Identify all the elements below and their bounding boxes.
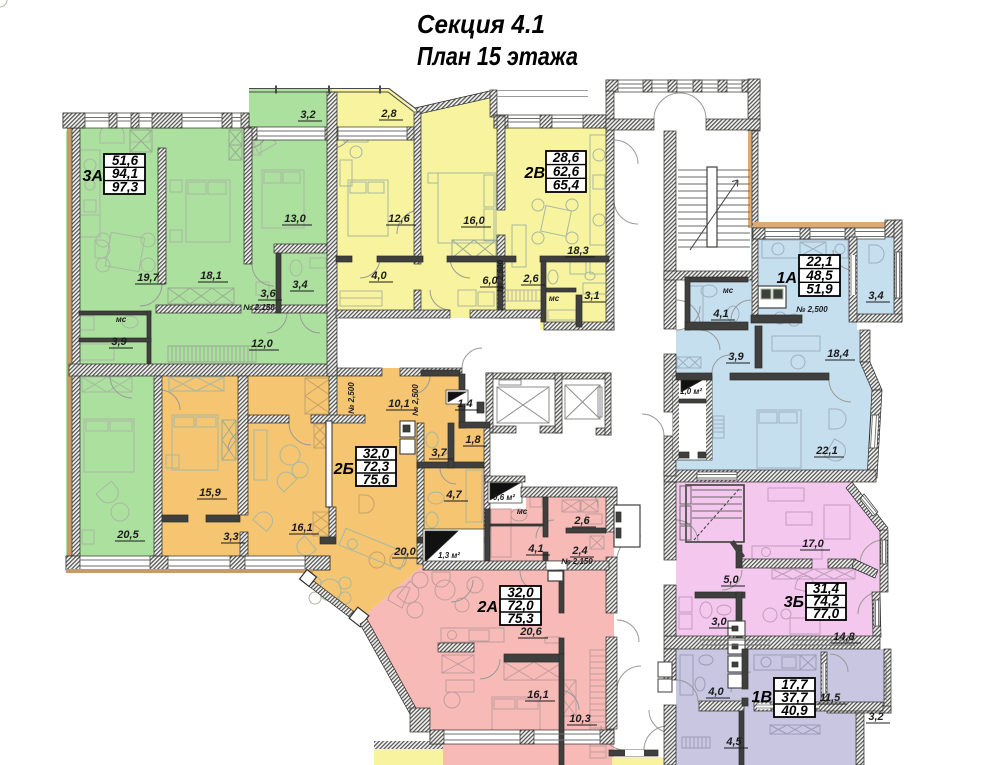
svg-text:18,3: 18,3: [567, 245, 588, 257]
svg-text:3,1: 3,1: [584, 290, 599, 302]
svg-text:19,7: 19,7: [137, 272, 159, 284]
svg-text:75,6: 75,6: [363, 472, 390, 487]
svg-text:№ 2,150: № 2,150: [243, 303, 275, 312]
svg-text:12,0: 12,0: [251, 338, 273, 350]
svg-text:17,0: 17,0: [802, 538, 824, 550]
svg-text:2В: 2В: [524, 165, 545, 182]
svg-text:0,6 м²: 0,6 м²: [493, 493, 515, 502]
svg-text:3,3: 3,3: [223, 531, 238, 543]
svg-text:1В: 1В: [752, 689, 772, 706]
svg-text:4,0: 4,0: [370, 270, 387, 282]
svg-text:10,1: 10,1: [388, 398, 409, 410]
svg-text:3,2: 3,2: [300, 109, 315, 121]
svg-text:97,3: 97,3: [112, 180, 139, 195]
svg-text:3,0: 3,0: [711, 616, 727, 628]
svg-text:12,6: 12,6: [388, 213, 410, 225]
svg-text:3,9: 3,9: [728, 351, 744, 363]
svg-text:16,0: 16,0: [463, 215, 485, 227]
svg-text:28,6: 28,6: [552, 150, 580, 165]
svg-text:16,1: 16,1: [291, 522, 312, 534]
svg-text:4,5: 4,5: [725, 736, 742, 748]
svg-text:1А: 1А: [777, 270, 797, 287]
svg-text:№ 2,500: № 2,500: [347, 382, 356, 414]
svg-text:10,3: 10,3: [569, 713, 590, 725]
svg-text:51,9: 51,9: [806, 282, 833, 297]
svg-text:мс: мс: [116, 315, 127, 324]
svg-text:мс: мс: [517, 507, 528, 516]
svg-text:3Б: 3Б: [784, 594, 804, 611]
svg-text:4,7: 4,7: [445, 489, 462, 501]
svg-text:4,0: 4,0: [707, 686, 724, 698]
svg-text:№ 2,500: № 2,500: [411, 384, 420, 416]
svg-text:16,1: 16,1: [527, 689, 548, 701]
svg-text:2,8: 2,8: [380, 108, 397, 120]
svg-text:2,4: 2,4: [571, 545, 587, 557]
svg-text:№ 2,150: № 2,150: [561, 557, 593, 566]
svg-text:4,1: 4,1: [527, 543, 543, 555]
svg-text:3,4: 3,4: [292, 279, 307, 291]
svg-text:77,0: 77,0: [813, 606, 840, 621]
svg-text:5,0: 5,0: [723, 574, 739, 586]
svg-text:3,7: 3,7: [431, 447, 447, 459]
svg-text:мс: мс: [723, 286, 734, 295]
svg-text:1,3 м²: 1,3 м²: [438, 551, 460, 560]
svg-text:4,1: 4,1: [712, 308, 728, 320]
svg-text:1,4: 1,4: [457, 398, 472, 410]
svg-text:3,6: 3,6: [260, 288, 276, 300]
svg-text:14,8: 14,8: [833, 631, 855, 643]
svg-text:15,9: 15,9: [199, 487, 221, 499]
svg-text:3,9: 3,9: [111, 336, 127, 348]
svg-text:40,9: 40,9: [780, 703, 808, 718]
svg-text:13,0: 13,0: [284, 213, 306, 225]
svg-text:2Б: 2Б: [333, 461, 354, 478]
svg-text:20,6: 20,6: [519, 626, 542, 638]
svg-text:22,1: 22,1: [815, 445, 837, 457]
svg-text:20,0: 20,0: [393, 546, 416, 558]
svg-text:3А: 3А: [83, 168, 103, 185]
svg-text:22,1: 22,1: [805, 254, 832, 269]
svg-text:1,8: 1,8: [465, 434, 481, 446]
svg-text:20,5: 20,5: [116, 529, 139, 541]
svg-text:2,6: 2,6: [522, 273, 539, 285]
svg-text:18,4: 18,4: [827, 348, 848, 360]
svg-text:3,2: 3,2: [868, 711, 883, 723]
svg-text:2А: 2А: [477, 599, 498, 616]
svg-text:18,1: 18,1: [200, 270, 221, 282]
svg-text:Секция 4.1: Секция 4.1: [417, 9, 545, 39]
svg-text:11,5: 11,5: [820, 692, 841, 704]
svg-text:План 15 этажа: План 15 этажа: [417, 41, 578, 71]
svg-text:3,4: 3,4: [868, 290, 883, 302]
svg-text:№ 2,500: № 2,500: [796, 305, 828, 314]
svg-text:65,4: 65,4: [553, 178, 580, 193]
svg-text:h= 2,500: h= 2,500: [496, 260, 505, 292]
svg-text:1,0 м²: 1,0 м²: [680, 387, 702, 396]
svg-text:2,6: 2,6: [573, 515, 590, 527]
svg-text:75,3: 75,3: [507, 611, 534, 626]
svg-text:мс: мс: [549, 294, 560, 303]
